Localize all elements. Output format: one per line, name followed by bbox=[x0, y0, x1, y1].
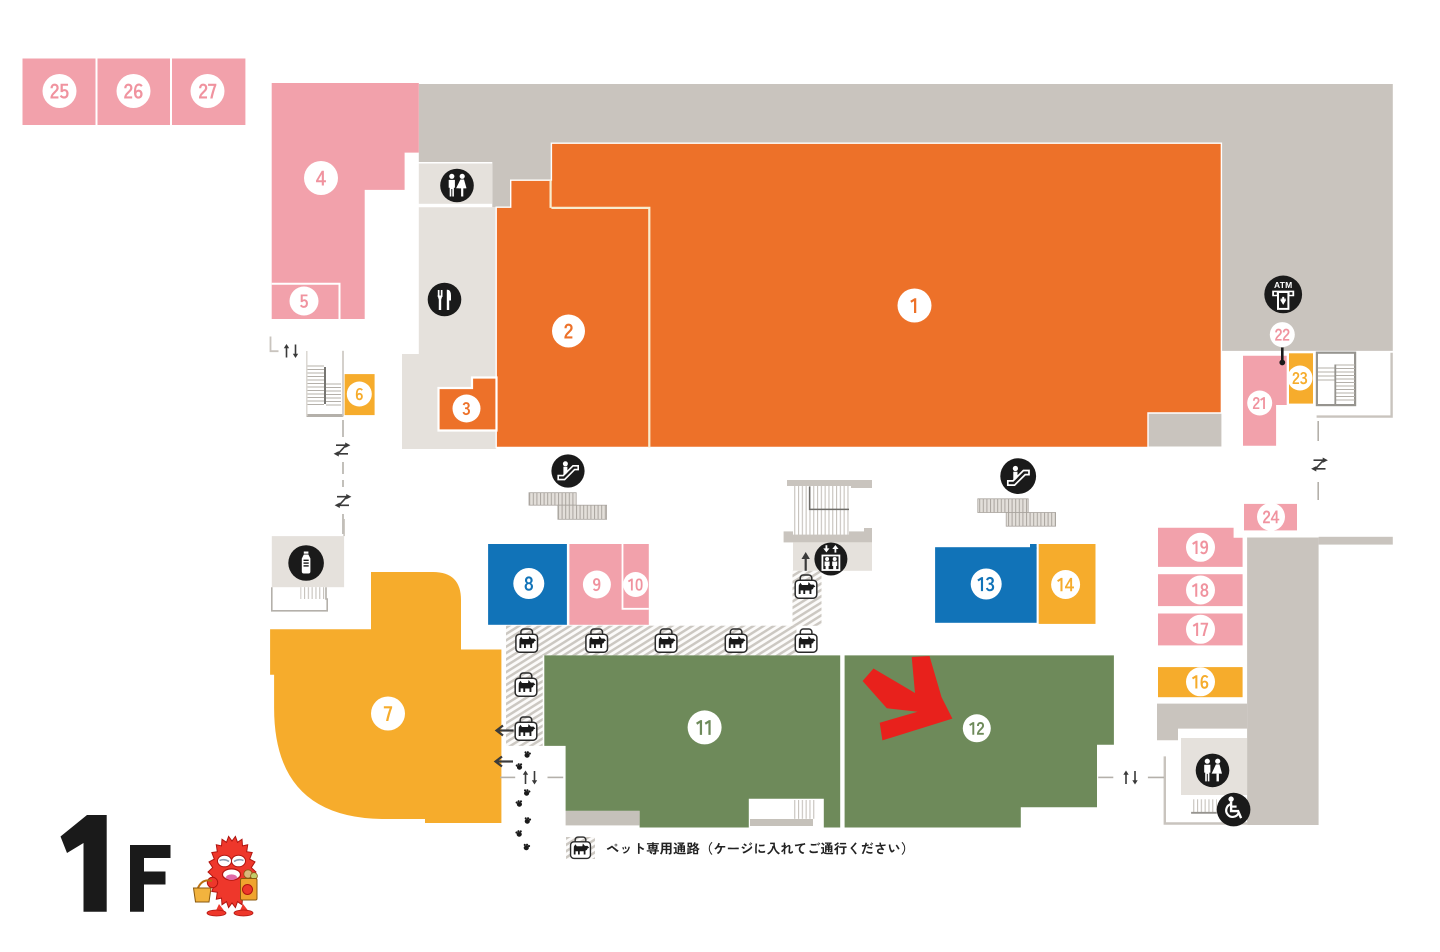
svg-text:ATM: ATM bbox=[1274, 280, 1292, 290]
